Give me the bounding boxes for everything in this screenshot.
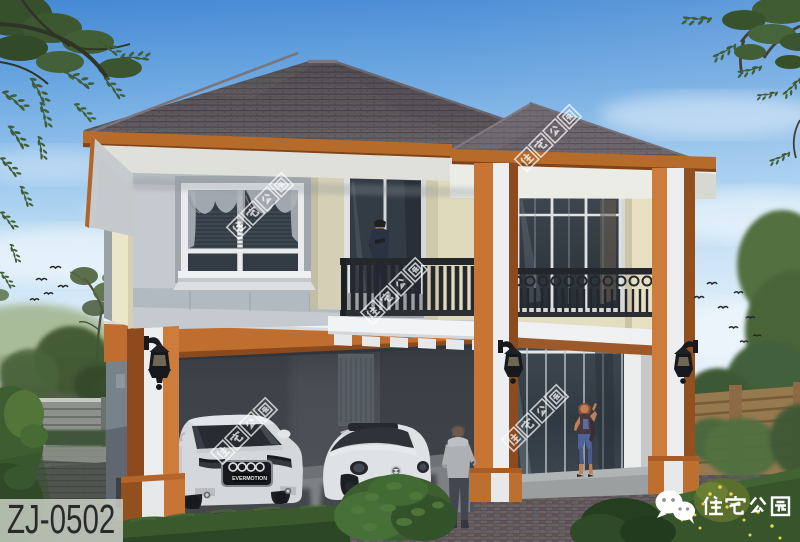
svg-text:EVERMOTION: EVERMOTION [232, 476, 267, 482]
